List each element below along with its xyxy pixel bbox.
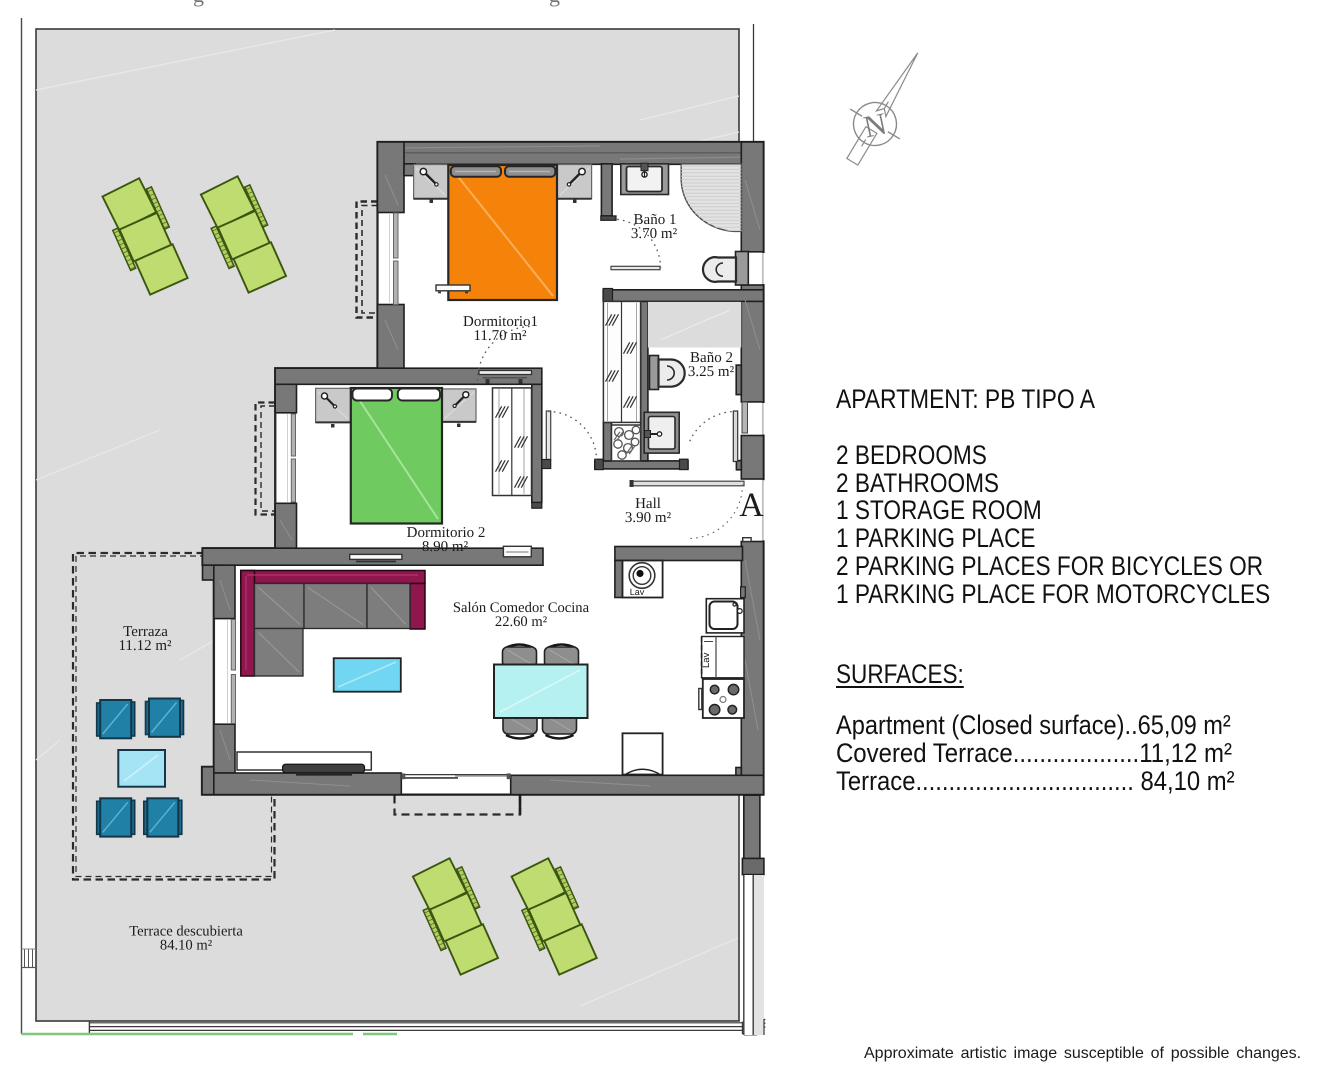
svg-text:3.90 m²: 3.90 m² — [625, 510, 672, 526]
svg-text:8.90 m²: 8.90 m² — [422, 539, 469, 555]
svg-text:11.12 m²: 11.12 m² — [118, 638, 172, 654]
svg-text:Lav: Lav — [630, 587, 645, 597]
svg-text:Lav: Lav — [701, 652, 712, 668]
svg-text:A: A — [739, 487, 764, 524]
svg-text:22.60 m²: 22.60 m² — [495, 614, 548, 630]
svg-text:84.10 m²: 84.10 m² — [160, 938, 213, 954]
svg-text:3.25 m²: 3.25 m² — [688, 364, 735, 380]
svg-text:3.70 m²: 3.70 m² — [631, 226, 678, 242]
svg-text:11.70 m²: 11.70 m² — [473, 328, 527, 344]
